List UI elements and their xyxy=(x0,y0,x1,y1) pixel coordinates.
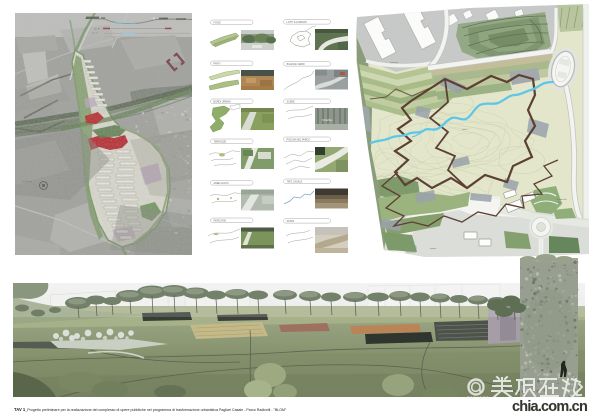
svg-text:BILANCE VERDI: BILANCE VERDI xyxy=(287,63,306,66)
svg-text:Pino: Pino xyxy=(558,202,563,204)
svg-text:parco: parco xyxy=(462,128,468,131)
svg-text:Casale del: Casale del xyxy=(556,199,567,201)
svg-text:AREE GIOCO: AREE GIOCO xyxy=(214,182,229,185)
svg-text:TOP INFO: TOP INFO xyxy=(467,396,490,400)
svg-text:SCENE: SCENE xyxy=(322,118,332,122)
svg-text:PRATI: PRATI xyxy=(214,63,221,66)
svg-text:SCENE: SCENE xyxy=(287,101,296,104)
svg-text:TERRAZZE: TERRAZZE xyxy=(214,141,227,144)
svg-text:FOSSI: FOSSI xyxy=(214,22,222,25)
svg-text:PISCINA NEL PARCO: PISCINA NEL PARCO xyxy=(287,139,311,142)
svg-text:chia.com.cn: chia.com.cn xyxy=(512,399,587,415)
svg-text:terrazze: terrazze xyxy=(390,61,399,64)
svg-text:piazza: piazza xyxy=(430,248,437,250)
svg-text:PERCORSI: PERCORSI xyxy=(214,220,227,223)
svg-text:TAV 1_Progetto preliminare per: TAV 1_Progetto preliminare per la realiz… xyxy=(14,407,287,412)
svg-text:LOTTI ILLUMINATI: LOTTI ILLUMINATI xyxy=(287,21,308,24)
svg-text:BORDI URBANI: BORDI URBANI xyxy=(214,101,232,104)
svg-text:SKATE: SKATE xyxy=(287,220,295,223)
svg-text:TIPO CASALE: TIPO CASALE xyxy=(287,181,303,184)
